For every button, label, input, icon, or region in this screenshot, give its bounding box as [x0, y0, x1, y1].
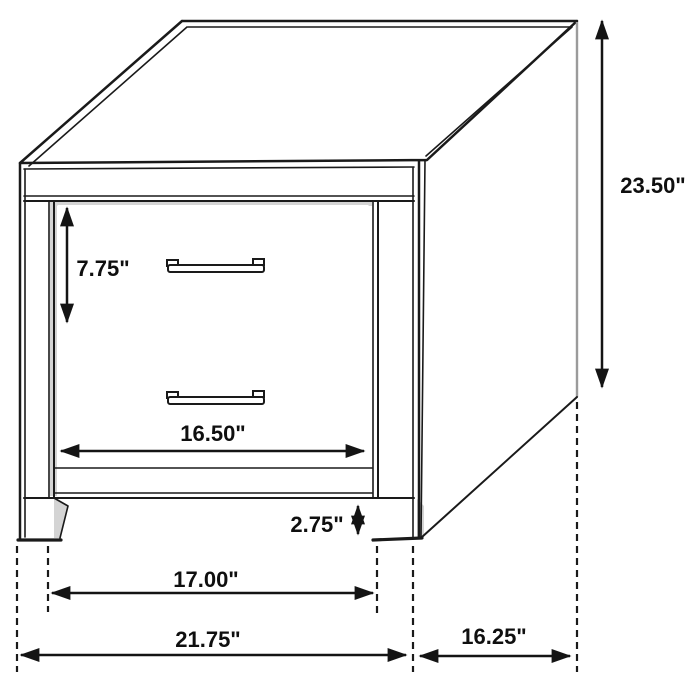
base-height-label: 2.75"	[290, 512, 343, 537]
dimension-diagram: 23.50" 7.75" 16.50" 2.75" 17.00" 21.75" …	[0, 0, 700, 700]
dimension-overall-height: 23.50"	[602, 21, 686, 387]
nightstand-drawing: 23.50" 7.75" 16.50" 2.75" 17.00" 21.75" …	[0, 0, 700, 700]
drawer-width-label: 16.50"	[180, 421, 245, 446]
overall-height-label: 23.50"	[620, 173, 685, 198]
dimension-overall-depth: 16.25"	[420, 624, 570, 656]
right-leg	[373, 538, 422, 540]
drawer-height-label: 7.75"	[76, 256, 129, 281]
overall-depth-label: 16.25"	[461, 624, 526, 649]
dimension-overall-width: 21.75"	[21, 627, 406, 655]
overall-width-label: 21.75"	[175, 627, 240, 652]
inner-leg-span-label: 17.00"	[173, 567, 238, 592]
dimension-inner-leg-span: 17.00"	[52, 567, 373, 593]
